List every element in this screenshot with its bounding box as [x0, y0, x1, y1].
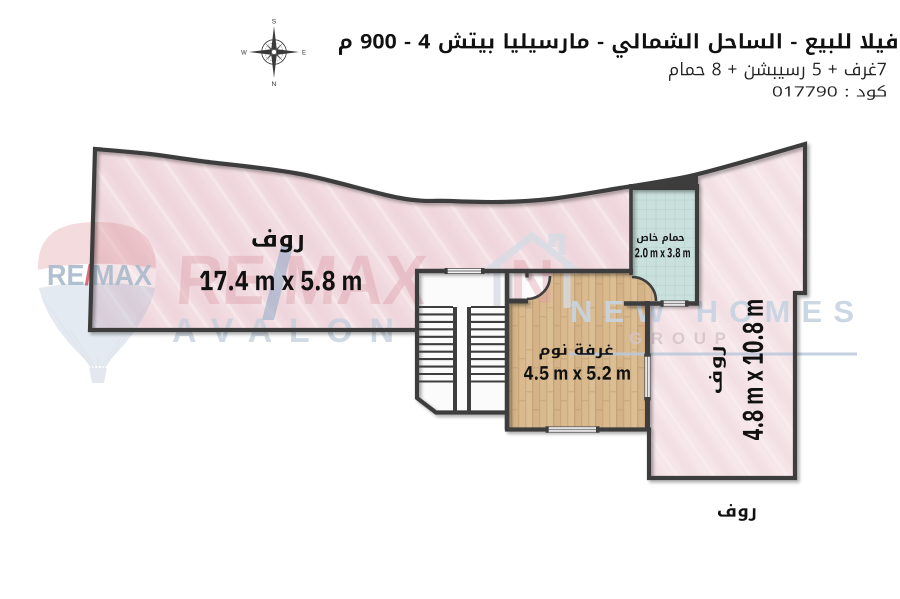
svg-text:NEW HOMES: NEW HOMES — [570, 294, 854, 329]
svg-text:RE/MAX: RE/MAX — [174, 241, 430, 319]
svg-text:S: S — [272, 19, 277, 26]
svg-text:N: N — [272, 81, 277, 88]
svg-text:RE/MAX: RE/MAX — [47, 260, 153, 292]
svg-text:W: W — [241, 51, 247, 57]
svg-text:E: E — [302, 51, 306, 57]
